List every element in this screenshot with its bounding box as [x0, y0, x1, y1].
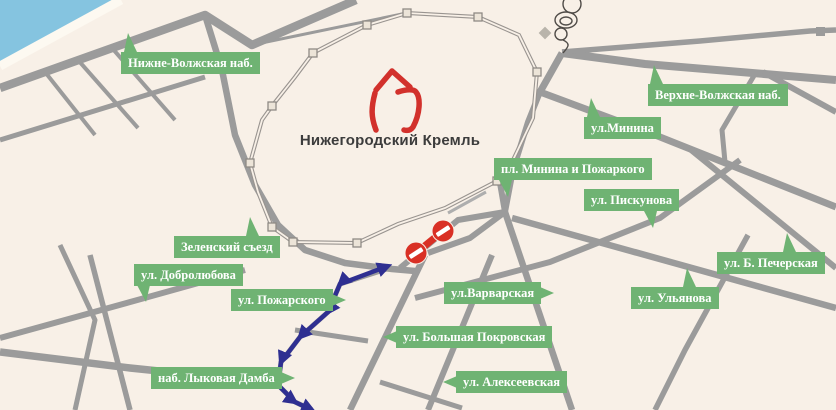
no-entry-sign-icon	[405, 242, 427, 264]
label-pointer	[137, 285, 150, 302]
map-canvas[interactable]: Нижегородский Кремль Нижне-Волжская наб.…	[0, 0, 836, 410]
label-pointer	[281, 372, 295, 384]
street-label-pecherskaya: ул. Б. Печерская	[717, 252, 825, 274]
street-label-alekseevskaya: ул. Алексеевская	[456, 371, 567, 393]
no-entry-signs-icon	[405, 220, 454, 264]
street-label-piskunova: ул. Пискунова	[584, 189, 679, 211]
label-pointer	[540, 287, 554, 299]
chkalov-stairs-icon	[539, 0, 581, 53]
street-label-pozharskogo: ул. Пожарского	[231, 289, 333, 311]
street-label-zelensky: Зеленский съезд	[174, 236, 280, 258]
label-pointer	[683, 268, 696, 287]
street-label-varvarskaya: ул.Варварская	[444, 282, 541, 304]
label-pointer	[499, 180, 512, 197]
label-pointer	[246, 217, 259, 236]
label-pointer	[443, 376, 457, 388]
street-label-dobrolyubova: ул. Добролюбова	[134, 264, 243, 286]
river-water	[0, 0, 121, 66]
kremlin-emblem-icon	[372, 71, 419, 130]
kremlin-title: Нижегородский Кремль	[292, 132, 488, 149]
no-entry-sign-icon	[432, 220, 454, 242]
label-pointer	[587, 98, 600, 117]
street-label-nizhne-volzhskaya: Нижне-Волжская наб.	[121, 52, 260, 74]
street-label-ulyanova: ул. Ульянова	[631, 287, 719, 309]
street-label-lykova-damba: наб. Лыковая Дамба	[151, 367, 282, 389]
label-pointer	[332, 294, 346, 306]
label-pointer	[644, 211, 657, 228]
label-pointer	[383, 331, 397, 343]
street-label-minina: ул.Минина	[584, 117, 661, 139]
street-label-verhne-volzhskaya: Верхне-Волжская наб.	[648, 84, 788, 106]
street-label-pokrovskaya: ул. Большая Покровская	[396, 326, 552, 348]
street-label-pl-minina: пл. Минина и Пожаркого	[494, 158, 652, 180]
label-pointer	[124, 33, 137, 52]
label-pointer	[783, 233, 796, 252]
label-pointer	[650, 65, 663, 84]
